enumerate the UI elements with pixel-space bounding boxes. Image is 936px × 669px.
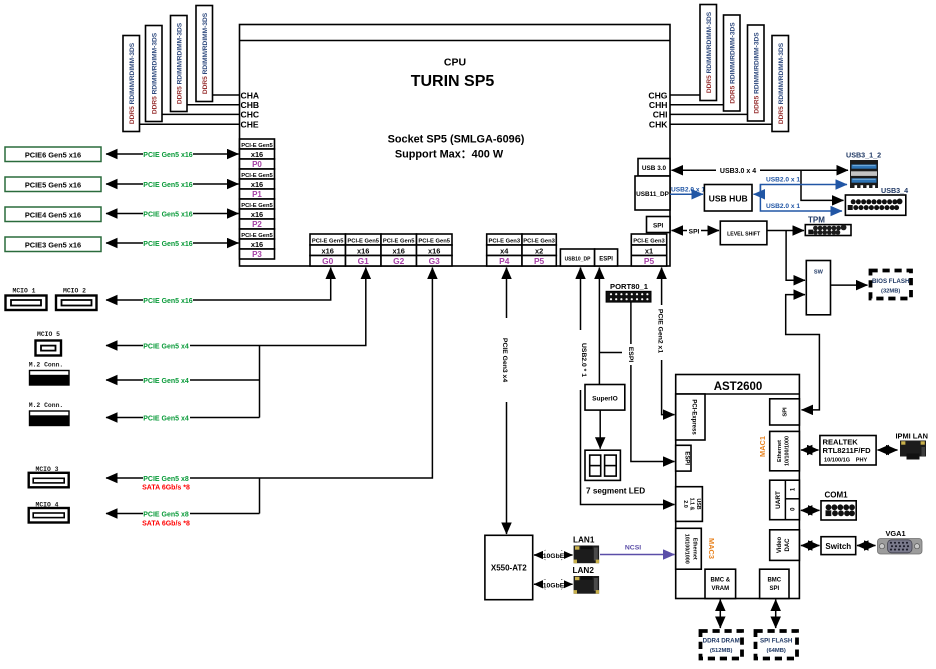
svg-text:PCIE Gen5 x8: PCIE Gen5 x8 <box>143 512 189 519</box>
svg-text:LAN2: LAN2 <box>573 566 595 575</box>
svg-text:BMC &: BMC & <box>710 578 730 584</box>
svg-text:USB: USB <box>695 498 701 509</box>
svg-text:DDR4 DRAM: DDR4 DRAM <box>703 638 740 645</box>
svg-text:PCI-E Gen3: PCI-E Gen3 <box>633 239 665 245</box>
svg-text:x4: x4 <box>500 246 509 255</box>
svg-text:x16: x16 <box>251 210 263 219</box>
svg-text:ESPI: ESPI <box>684 451 690 465</box>
svg-text:x16: x16 <box>322 246 334 255</box>
svg-text:SATA 6Gb/s *8: SATA 6Gb/s *8 <box>142 520 190 527</box>
svg-text:CHI: CHI <box>653 110 668 120</box>
svg-text:PCIE6 Gen5 x16: PCIE6 Gen5 x16 <box>25 151 81 160</box>
svg-text:CHG: CHG <box>648 91 667 101</box>
svg-text:Switch: Switch <box>825 542 851 551</box>
svg-text:P1: P1 <box>252 190 262 199</box>
svg-text:(32MB): (32MB) <box>881 289 900 295</box>
svg-text:x2: x2 <box>535 246 543 255</box>
svg-text:USB2.0 x 1: USB2.0 x 1 <box>766 203 800 210</box>
svg-text:VGA1: VGA1 <box>886 529 906 538</box>
svg-text:(64MB): (64MB) <box>767 648 786 654</box>
svg-text:10/100/1G PHY: 10/100/1G PHY <box>824 458 867 464</box>
svg-text:Video: Video <box>777 537 783 554</box>
svg-text:Socket SP5 (SMLGA-6096): Socket SP5 (SMLGA-6096) <box>388 134 525 146</box>
svg-text:SPI: SPI <box>769 586 779 592</box>
svg-text:x16: x16 <box>393 246 405 255</box>
svg-text:USB3_1_2: USB3_1_2 <box>846 150 881 159</box>
svg-text:P3: P3 <box>252 250 262 259</box>
svg-text:AST2600: AST2600 <box>714 381 763 393</box>
svg-text:SPI: SPI <box>783 407 789 417</box>
svg-text:PCI-E Gen5: PCI-E Gen5 <box>241 233 273 239</box>
svg-text:P5: P5 <box>534 256 545 266</box>
svg-text:UART: UART <box>775 491 782 509</box>
svg-text:ESPI: ESPI <box>627 347 634 363</box>
svg-text:P2: P2 <box>252 220 262 229</box>
svg-text:P0: P0 <box>252 160 262 169</box>
svg-text:PCIE Gen2 x1: PCIE Gen2 x1 <box>657 309 664 353</box>
svg-text:USB2.0 x 1: USB2.0 x 1 <box>671 186 705 193</box>
svg-text:PCI-E Gen5: PCI-E Gen5 <box>418 239 450 245</box>
svg-text:USB HUB: USB HUB <box>709 193 748 203</box>
svg-text:PCIE Gen3 x4: PCIE Gen3 x4 <box>501 338 508 382</box>
svg-text:TURIN SP5: TURIN SP5 <box>411 73 495 90</box>
svg-text:10GbE: 10GbE <box>543 553 565 560</box>
svg-text:Ethernet: Ethernet <box>692 538 698 560</box>
svg-text:PCIE Gen5 x16: PCIE Gen5 x16 <box>143 212 193 219</box>
svg-text:SPI: SPI <box>653 223 664 230</box>
svg-text:X550-AT2: X550-AT2 <box>491 564 527 573</box>
svg-text:CPU: CPU <box>444 57 466 69</box>
svg-text:COM1: COM1 <box>825 491 849 500</box>
svg-text:G0: G0 <box>322 256 334 266</box>
svg-text:MCIO 5: MCIO 5 <box>37 331 60 338</box>
svg-text:USB2.0 x 1: USB2.0 x 1 <box>766 176 800 183</box>
svg-text:x16: x16 <box>251 180 263 189</box>
svg-text:SATA 6Gb/s *8: SATA 6Gb/s *8 <box>142 484 190 491</box>
svg-text:USB3_4: USB3_4 <box>881 186 908 195</box>
svg-text:MAC3: MAC3 <box>707 538 716 559</box>
svg-text:VRAM: VRAM <box>711 586 729 592</box>
svg-text:CHB: CHB <box>241 100 260 110</box>
svg-text:7 segment LED: 7 segment LED <box>586 487 645 496</box>
svg-text:USB 3.0: USB 3.0 <box>642 165 667 172</box>
svg-text:PCIE Gen5 x8: PCIE Gen5 x8 <box>143 476 189 483</box>
svg-text:PCIE Gen5 x4: PCIE Gen5 x4 <box>143 416 189 423</box>
svg-text:(512MB): (512MB) <box>710 648 733 654</box>
svg-text:P4: P4 <box>499 256 510 266</box>
svg-text:PCI-E Gen5: PCI-E Gen5 <box>312 239 344 245</box>
svg-text:PCIE Gen5 x4: PCIE Gen5 x4 <box>143 378 189 385</box>
svg-text:Support Max：400 W: Support Max：400 W <box>395 149 504 161</box>
svg-text:SW: SW <box>814 270 824 276</box>
svg-text:IPMI LAN: IPMI LAN <box>896 432 928 441</box>
svg-text:SuperIO: SuperIO <box>592 396 618 403</box>
svg-text:M.2 Conn.: M.2 Conn. <box>29 362 64 369</box>
svg-text:PCI-E Gen3: PCI-E Gen3 <box>489 239 521 245</box>
svg-text:SPI FLASH: SPI FLASH <box>760 638 793 645</box>
svg-text:10GbE: 10GbE <box>543 582 565 589</box>
svg-text:Ethernet: Ethernet <box>777 440 783 462</box>
svg-text:PCIE3 Gen5 x16: PCIE3 Gen5 x16 <box>25 241 81 250</box>
svg-text:BIOS FLASH: BIOS FLASH <box>872 278 910 285</box>
svg-text:USB3.0 x 4: USB3.0 x 4 <box>720 168 756 175</box>
svg-text:G1: G1 <box>358 256 370 266</box>
svg-text:TPM: TPM <box>808 215 825 224</box>
svg-text:x16: x16 <box>428 246 440 255</box>
svg-text:M.2 Conn.: M.2 Conn. <box>29 402 64 409</box>
svg-text:1.1 &: 1.1 & <box>689 498 695 511</box>
svg-text:PCI-E Gen5: PCI-E Gen5 <box>241 203 273 209</box>
svg-text:RTL8211F/FD: RTL8211F/FD <box>823 446 872 455</box>
svg-text:NCSI: NCSI <box>625 545 641 552</box>
svg-text:PCIE Gen5 x16: PCIE Gen5 x16 <box>143 182 193 189</box>
svg-text:MCIO 2: MCIO 2 <box>63 288 86 295</box>
svg-text:USB10_DP: USB10_DP <box>565 256 592 262</box>
svg-text:CHA: CHA <box>241 91 260 101</box>
svg-text:PCIE Gen5 x16: PCIE Gen5 x16 <box>143 298 193 305</box>
svg-text:PCI-E Gen3: PCI-E Gen3 <box>523 239 555 245</box>
svg-text:G2: G2 <box>393 256 405 266</box>
svg-text:x16: x16 <box>251 150 263 159</box>
svg-text:PCIE5 Gen5 x16: PCIE5 Gen5 x16 <box>25 181 81 190</box>
svg-text:PCI-E Gen5: PCI-E Gen5 <box>347 239 379 245</box>
svg-text:CHE: CHE <box>241 119 259 129</box>
svg-text:CHH: CHH <box>649 100 668 110</box>
svg-text:CHK: CHK <box>649 119 668 129</box>
svg-text:PORT80_1: PORT80_1 <box>610 282 649 291</box>
svg-text:x1: x1 <box>645 246 653 255</box>
svg-text:MAC1: MAC1 <box>758 436 767 457</box>
svg-text:PCI-E Gen5: PCI-E Gen5 <box>241 173 273 179</box>
svg-text:G3: G3 <box>429 256 441 266</box>
svg-text:PCIE Gen5 x16: PCIE Gen5 x16 <box>143 241 193 248</box>
svg-text:PCI-Express: PCI-Express <box>691 399 697 435</box>
svg-text:SPI: SPI <box>689 229 700 236</box>
svg-text:BMC: BMC <box>767 578 781 584</box>
svg-text:10/100/1000: 10/100/1000 <box>684 534 690 564</box>
svg-text:CHC: CHC <box>241 110 260 120</box>
svg-text:10/100/1000: 10/100/1000 <box>785 436 791 466</box>
svg-text:PCI-E Gen5: PCI-E Gen5 <box>383 239 415 245</box>
svg-text:MCIO 1: MCIO 1 <box>12 288 35 295</box>
svg-text:USB11_DP: USB11_DP <box>636 191 669 198</box>
svg-text:PCIE Gen5 x16: PCIE Gen5 x16 <box>143 152 193 159</box>
svg-text:x16: x16 <box>251 240 263 249</box>
svg-text:PCIE4 Gen5 x16: PCIE4 Gen5 x16 <box>25 211 81 220</box>
svg-text:USB2.0 * 1: USB2.0 * 1 <box>580 343 587 377</box>
svg-text:LEVEL SHIFT: LEVEL SHIFT <box>727 231 761 237</box>
svg-text:PCIE Gen5 x4: PCIE Gen5 x4 <box>143 344 189 351</box>
svg-text:2.0: 2.0 <box>682 500 688 508</box>
svg-text:DAC: DAC <box>785 538 791 552</box>
svg-text:P5: P5 <box>644 256 655 266</box>
svg-text:x16: x16 <box>357 246 369 255</box>
svg-text:PCI-E Gen5: PCI-E Gen5 <box>241 143 273 149</box>
svg-text:LAN1: LAN1 <box>573 536 595 545</box>
svg-text:ESPI: ESPI <box>599 256 613 262</box>
